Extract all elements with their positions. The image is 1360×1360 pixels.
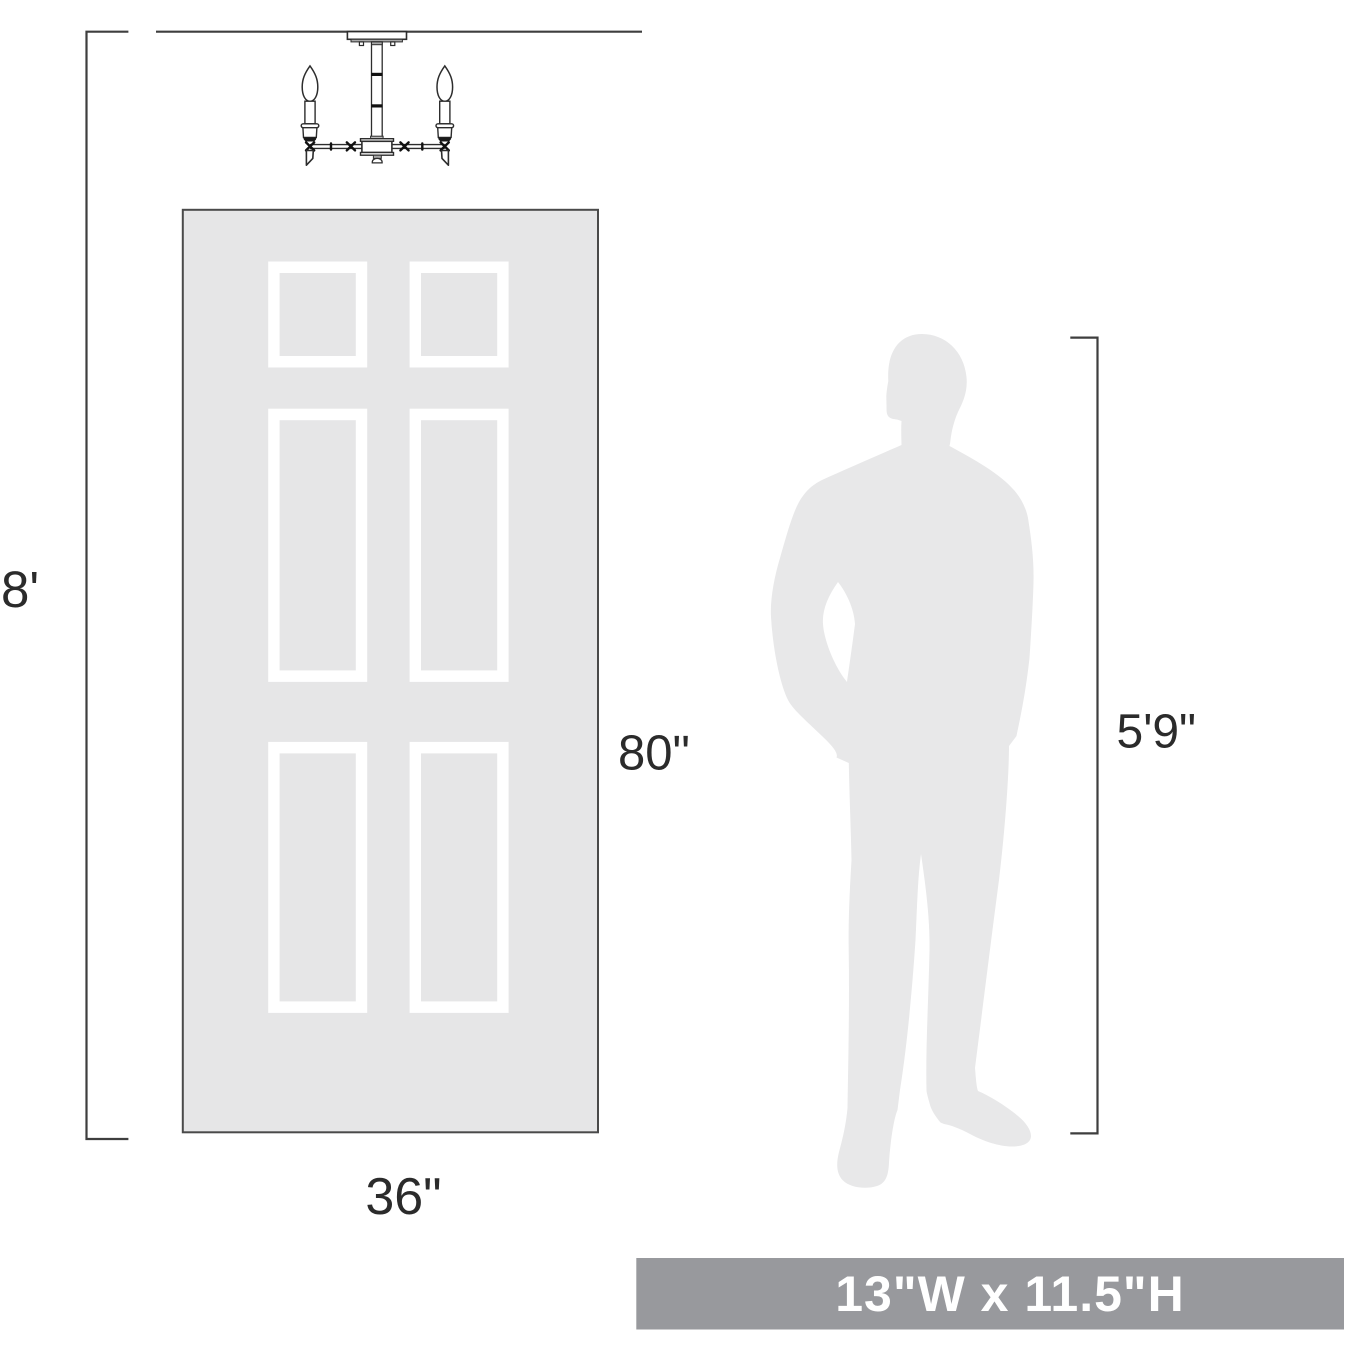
svg-text:13"W x 11.5"H: 13"W x 11.5"H (835, 1266, 1184, 1322)
svg-text:80": 80" (618, 727, 690, 781)
svg-text:36": 36" (365, 1168, 441, 1226)
svg-text:5'9": 5'9" (1117, 706, 1197, 759)
svg-text:8': 8' (1, 561, 39, 618)
